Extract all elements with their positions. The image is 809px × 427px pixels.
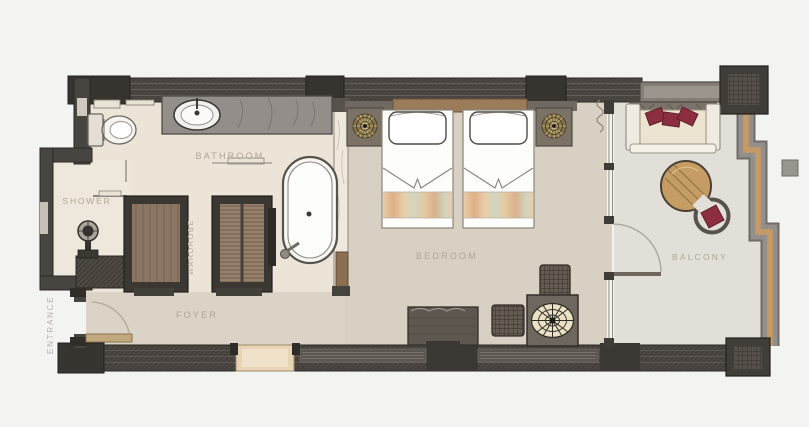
vanity-washbasin (162, 96, 332, 134)
bathtub-drain (307, 212, 312, 217)
bedroom-label: BEDROOM (397, 251, 497, 261)
nightstand-right (536, 108, 572, 146)
ceiling-fan-medallion-icon (353, 114, 377, 138)
shower-label: SHOWER (47, 196, 127, 206)
floor-plan: BATHROOM SHOWER WARDROBE FOYER BEDROOM B… (0, 0, 809, 427)
ottoman-upper (540, 265, 570, 297)
ceiling-fan-medallion-icon (542, 114, 566, 138)
floor-plan-drawing (0, 0, 809, 427)
pillow (470, 112, 527, 144)
balcony-door-leaf (613, 272, 661, 276)
entrance-door-leaf (86, 334, 132, 342)
balcony-label: BALCONY (650, 252, 750, 262)
twin-bed-left (382, 110, 453, 228)
twin-bed-right (463, 110, 534, 228)
foyer-label: FOYER (147, 310, 247, 320)
wardrobe-label: WARDROBE (186, 204, 195, 290)
pillow (389, 112, 446, 144)
bathroom-label: BATHROOM (180, 151, 280, 161)
bottom-door-opening (230, 343, 300, 371)
radial-side-table (527, 295, 578, 346)
ottoman-lower (492, 305, 524, 336)
nightstand-left (347, 108, 383, 146)
balcony-daybed (626, 102, 720, 153)
wardrobe-closet-left (124, 196, 188, 296)
bench (408, 307, 478, 348)
wardrobe-closet-right (212, 196, 276, 296)
toilet (88, 114, 136, 146)
blanket (383, 192, 452, 218)
blanket (464, 192, 533, 218)
bathtub (281, 157, 338, 263)
entrance-label: ENTRANCE (46, 290, 55, 360)
